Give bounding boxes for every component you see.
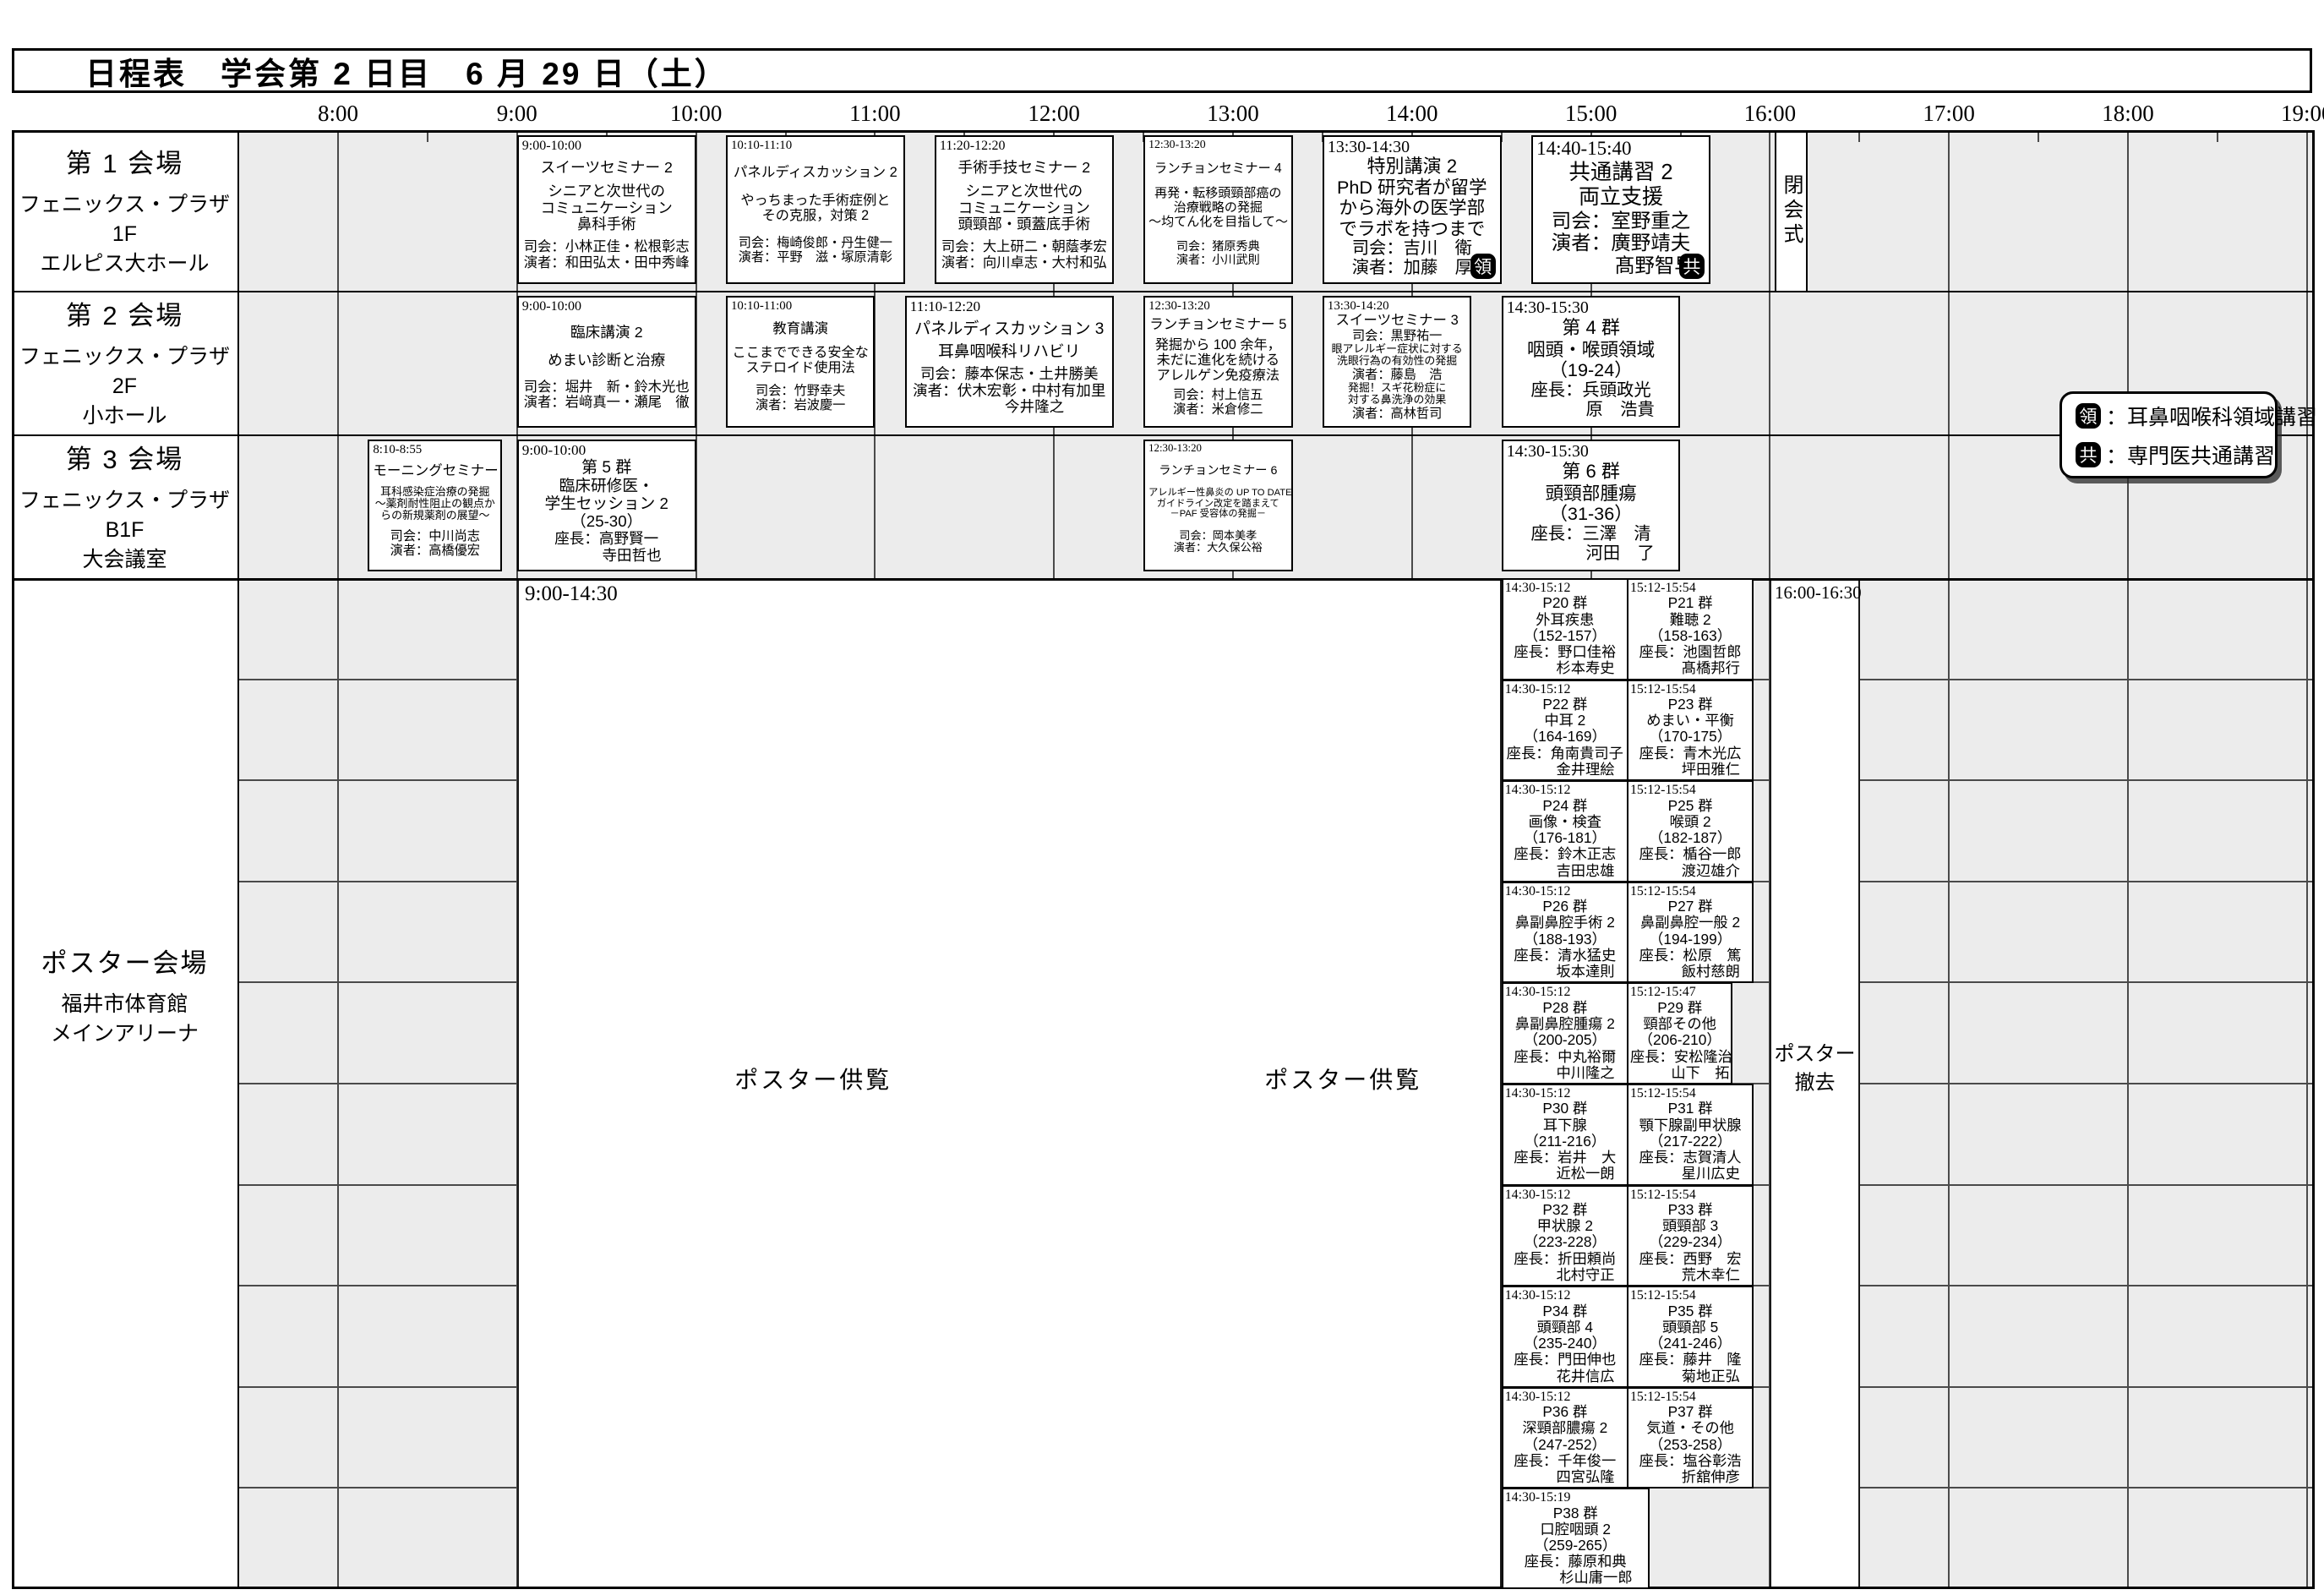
poster-group-line: （176-181） [1505, 830, 1625, 846]
line-group: パネルディスカッション 2 [731, 165, 900, 180]
poster-viewing-cell: 9:00-14:30 ポスター供覧 ポスター供覧 [517, 578, 1502, 1589]
poster-group-line: 北村守正 [1505, 1267, 1625, 1283]
session-line: 耳科感染症治療の発掘 [373, 486, 497, 498]
poster-group-content: P23 群めまい・平衡（170-175）座長：青木光広坪田雅仁 [1630, 696, 1750, 778]
line-group: 両立支援 [1536, 185, 1705, 209]
session-content: 教育講演ここまでできる安全なステロイド使用法司会：竹野幸夫演者：岩波慶一 [731, 313, 870, 421]
session-line: 司会：梅崎俊郎・丹生健一 [731, 236, 900, 250]
session-line: 演者：小川武則 [1148, 254, 1287, 267]
line-group: スイーツセミナー 3 [1328, 313, 1466, 328]
venue-name: 第 1 会場 [66, 142, 183, 180]
poster-group-content: P21 群難聴 2（158-163）座長：池園哲郎髙橋邦行 [1630, 595, 1750, 676]
poster-group-time: 15:12-15:54 [1630, 884, 1750, 899]
session-content: ランチョンセミナー 5発掘から 100 余年，未だに進化を続けるアレルゲン免疫療… [1148, 313, 1287, 421]
session-time: 10:10-11:00 [731, 299, 870, 313]
schedule-page: 日程表 学会第 2 日目 6 月 29 日（土） 9:00-14:30 ポスター… [0, 0, 2324, 1595]
poster-group-line: 画像・検査 [1505, 814, 1625, 830]
session-content: 手術手技セミナー 2シニアと次世代のコミュニケーション頭頸部・頭蓋底手術司会：大… [940, 153, 1109, 277]
session-line: 演者：廣野靖夫 [1536, 232, 1705, 254]
poster-group-line: （206-210） [1630, 1032, 1729, 1048]
poster-group-content: P35 群頭頸部 5（241-246）座長：藤井 隆菊地正弘 [1630, 1303, 1750, 1384]
poster-group-time: 14:30-15:12 [1505, 783, 1625, 797]
poster-group-line: P29 群 [1630, 1000, 1729, 1016]
line-group: 座長：三澤 清河田 了 [1507, 525, 1676, 564]
poster-group-line: P34 群 [1505, 1303, 1625, 1319]
poster-group-line: （223-228） [1505, 1234, 1625, 1250]
session-line: 手術手技セミナー 2 [940, 160, 1109, 177]
poster-group-line: めまい・平衡 [1630, 713, 1750, 729]
session-line: ランチョンセミナー 4 [1148, 161, 1287, 176]
poster-removal-time: 16:00-16:30 [1775, 582, 1862, 604]
session-content: ランチョンセミナー 6アレルギー性鼻炎の UP TO DATEガイドライン改定を… [1148, 455, 1287, 565]
line-group: 眼アレルギー症状に対する洗眼行為の有効性の発掘 [1328, 343, 1466, 368]
session-block: 9:00-10:00第 5 群臨床研修医・学生セッション 2（25-30）座長：… [517, 440, 696, 571]
session-block: 10:10-11:00教育講演ここまでできる安全なステロイド使用法司会：竹野幸夫… [726, 296, 875, 428]
poster-group-time: 15:12-15:54 [1630, 1288, 1750, 1303]
session-line: ランチョンセミナー 6 [1148, 465, 1287, 478]
session-content: 第 5 群臨床研修医・学生セッション 2（25-30）座長：高野賢一寺田哲也 [522, 459, 691, 565]
session-line: 洗眼行為の有効性の発掘 [1328, 355, 1466, 367]
session-content: パネルディスカッション 3耳鼻咽喉科リハビリ司会：藤本保志・土井勝美演者：伏木宏… [910, 315, 1109, 421]
session-content: 第 4 群咽頭・喉頭領域（19-24）座長：兵頭政光原 浩貴 [1507, 317, 1676, 421]
line-group: 頭頸部腫瘍（31-36） [1507, 483, 1676, 524]
session-time: 11:20-12:20 [940, 139, 1109, 153]
poster-group-block: 15:12-15:47P29 群頸部その他（206-210）座長：安松隆治山下 … [1627, 982, 1732, 1084]
poster-group-line: 外耳疾患 [1505, 612, 1625, 628]
venue-hall: メインアリーナ [51, 1019, 199, 1049]
session-line: 演者：高橋優宏 [373, 544, 497, 558]
poster-group-line: 座長：中丸裕爾 [1505, 1049, 1625, 1065]
poster-removal-label: ポスター撤去 [1773, 1041, 1858, 1097]
session-line: 眼アレルギー症状に対する [1328, 343, 1466, 355]
time-axis-label: 17:00 [1902, 101, 1995, 127]
poster-group-line: 顎下腺副甲状腺 [1630, 1117, 1750, 1133]
session-line: 司会：小林正佳・松根彰志 [522, 239, 691, 254]
session-line: 特別講演 2 [1328, 156, 1497, 178]
poster-group-line: （200-205） [1505, 1032, 1625, 1048]
poster-group-line: 座長：岩井 大 [1505, 1150, 1625, 1166]
ryoiki-badge: 領 [2076, 403, 2101, 429]
session-line: らの新規薬剤の展望～ [373, 510, 497, 522]
poster-group-line: 金井理絵 [1505, 762, 1625, 778]
poster-group-content: P25 群喉頭 2（182-187）座長：楯谷一郎渡辺雄介 [1630, 797, 1750, 878]
session-line: スイーツセミナー 2 [522, 160, 691, 177]
poster-group-time: 14:30-15:12 [1505, 581, 1625, 595]
poster-group-line: 座長：折田頼尚 [1505, 1251, 1625, 1267]
session-line: その克服，対策 2 [731, 208, 900, 223]
poster-group-line: 座長：藤原和典 [1505, 1554, 1646, 1570]
session-line: 司会：村上信五 [1148, 388, 1287, 402]
poster-group-line: 座長：清水猛史 [1505, 948, 1625, 964]
poster-group-line: 渡辺雄介 [1630, 863, 1750, 879]
session-time: 14:30-15:30 [1507, 299, 1676, 317]
poster-group-line: 坂本達則 [1505, 964, 1625, 980]
poster-group-line: 髙橋邦行 [1630, 660, 1750, 676]
row-border [12, 291, 2315, 292]
poster-group-line: 座長：志賀清人 [1630, 1150, 1750, 1166]
poster-group-line: 座長：藤井 隆 [1630, 1352, 1750, 1368]
frame-border [2312, 130, 2315, 1589]
title-bar: 日程表 学会第 2 日目 6 月 29 日（土） [12, 48, 2312, 93]
poster-group-line: 座長：角南貴司子 [1505, 746, 1625, 762]
venue-floor: 福井市体育館 [61, 990, 188, 1019]
line-group: やっちまった手術症例とその克服，対策 2 [731, 193, 900, 223]
session-line: モーニングセミナー [373, 463, 497, 478]
session-content: パネルディスカッション 2やっちまった手術症例とその克服，対策 2司会：梅崎俊郎… [731, 152, 900, 277]
line-group: シニアと次世代のコミュニケーション鼻科手術 [522, 183, 691, 232]
session-line: 治療戦略の発掘 [1148, 201, 1287, 216]
poster-group-time: 14:30-15:12 [1505, 682, 1625, 696]
poster-group-time: 14:30-15:12 [1505, 1390, 1625, 1404]
line-group: 第 6 群 [1507, 462, 1676, 483]
session-line: めまい診断と治療 [522, 352, 691, 369]
line-group: シニアと次世代のコミュニケーション頭頸部・頭蓋底手術 [940, 183, 1109, 232]
poster-group-line: P35 群 [1630, 1303, 1750, 1319]
poster-group-content: P32 群甲状腺 2（223-228）座長：折田頼尚北村守正 [1505, 1202, 1625, 1283]
poster-group-content: P28 群鼻副鼻腔腫瘍 2（200-205）座長：中丸裕爾中川隆之 [1505, 1000, 1625, 1081]
lecture-type-badge: 領 [1470, 254, 1496, 279]
hour-gridline [337, 130, 339, 1589]
session-block: 12:30-13:20ランチョンセミナー 6アレルギー性鼻炎の UP TO DA… [1143, 440, 1292, 571]
poster-group-line: （253-258） [1630, 1437, 1750, 1453]
session-block: 14:40-15:40共通講習 2両立支援司会：室野重之演者：廣野靖夫髙野智早共 [1531, 135, 1710, 284]
line-group: 演者：藤島 浩 [1328, 368, 1466, 382]
poster-group-content: P34 群頭頸部 4（235-240）座長：門田伸也花井信広 [1505, 1303, 1625, 1384]
session-line: から海外の医学部 [1328, 198, 1497, 218]
poster-group-line: （247-252） [1505, 1437, 1625, 1453]
session-line: 鼻科手術 [522, 216, 691, 232]
venue-label-3: 第 3 会場フェニックス・プラザ B1F大会議室 [14, 434, 235, 578]
line-group: 手術手技セミナー 2 [940, 160, 1109, 177]
session-line: 司会：中川尚志 [373, 529, 497, 544]
poster-group-line: （217-222） [1630, 1133, 1750, 1150]
time-axis-label: 19:00 [2261, 101, 2324, 127]
line-group: 耳鼻咽喉科リハビリ [910, 343, 1109, 361]
poster-group-time: 14:30-15:12 [1505, 884, 1625, 899]
poster-group-line: 鼻副鼻腔手術 2 [1505, 915, 1625, 931]
session-line: 原 浩貴 [1507, 401, 1676, 420]
session-line: 学生セッション 2 [522, 495, 691, 513]
session-line: ランチョンセミナー 5 [1148, 317, 1287, 332]
line-group: 咽頭・喉頭領域（19-24） [1507, 340, 1676, 380]
time-axis-label: 16:00 [1723, 101, 1816, 127]
line-group: 座長：高野賢一寺田哲也 [522, 531, 691, 564]
session-content: スイーツセミナー 2シニアと次世代のコミュニケーション鼻科手術司会：小林正佳・松… [522, 153, 691, 277]
session-line: 河田 了 [1507, 544, 1676, 564]
poster-group-line: 飯村慈朗 [1630, 964, 1750, 980]
poster-group-line: 頭頸部 4 [1505, 1319, 1625, 1336]
poster-group-line: 座長：池園哲郎 [1630, 644, 1750, 660]
session-time: 11:10-12:20 [910, 299, 1109, 315]
session-block: 11:20-12:20手術手技セミナー 2シニアと次世代のコミュニケーション頭頸… [935, 135, 1114, 284]
session-line: 咽頭・喉頭領域 [1507, 340, 1676, 360]
session-time: 9:00-10:00 [522, 139, 691, 153]
poster-group-line: 座長：塩谷彰浩 [1630, 1453, 1750, 1469]
line-group: 教育講演 [731, 321, 870, 336]
venue-label-poster: ポスター会場福井市体育館メインアリーナ [14, 578, 235, 1587]
session-line: 寺田哲也 [522, 548, 691, 565]
line-group: ランチョンセミナー 5 [1148, 317, 1287, 332]
poster-group-block: 15:12-15:54P27 群鼻副鼻腔一般 2（194-199）座長：松原 篤… [1627, 882, 1754, 984]
session-line: 司会：竹野幸夫 [731, 384, 870, 398]
poster-group-line: 口腔咽頭 2 [1505, 1521, 1646, 1538]
poster-group-line: P21 群 [1630, 595, 1750, 611]
poster-group-line: （158-163） [1630, 628, 1750, 644]
session-line: 司会：大上研二・朝蔭孝宏 [940, 239, 1109, 254]
session-time: 9:00-10:00 [522, 299, 691, 314]
session-line: 教育講演 [731, 321, 870, 336]
hour-gridline [2306, 130, 2308, 1589]
poster-group-line: 気道・その他 [1630, 1420, 1750, 1436]
session-line: ステロイド使用法 [731, 360, 870, 375]
session-line: 演者：大久保公裕 [1148, 542, 1287, 554]
poster-group-content: P27 群鼻副鼻腔一般 2（194-199）座長：松原 篤飯村慈朗 [1630, 899, 1750, 980]
poster-group-line: 喉頭 2 [1630, 814, 1750, 830]
session-line: －PAF 受容体の発掘－ [1148, 509, 1287, 520]
poster-group-line: （152-157） [1505, 628, 1625, 644]
line-group: 司会：大上研二・朝蔭孝宏演者：向川卓志・大村和弘 [940, 239, 1109, 270]
poster-viewing-time: 9:00-14:30 [525, 582, 618, 606]
session-line: アレルギー性鼻炎の UP TO DATE [1148, 488, 1287, 499]
poster-group-time: 15:12-15:54 [1630, 1390, 1750, 1404]
poster-group-line: 頭頸部 5 [1630, 1319, 1750, 1336]
session-line: 司会：藤本保志・土井勝美 [910, 366, 1109, 383]
session-block: 9:00-10:00スイーツセミナー 2シニアと次世代のコミュニケーション鼻科手… [517, 135, 696, 284]
line-group: 演者：高林哲司 [1328, 407, 1466, 421]
venue-hall: 大会議室 [82, 545, 166, 575]
time-axis-label: 13:00 [1187, 101, 1279, 127]
session-content: モーニングセミナー耳科感染症治療の発掘～薬剤耐性阻止の観点からの新規薬剤の展望～… [373, 456, 497, 565]
poster-group-block: 14:30-15:12P26 群鼻副鼻腔手術 2（188-193）座長：清水猛史… [1502, 882, 1628, 984]
closing-ceremony-cell: 閉会式 [1775, 130, 1808, 291]
venue-hall: エルピス大ホール [40, 249, 209, 279]
session-line: 共通講習 2 [1536, 161, 1705, 185]
venue-floor: フェニックス・プラザ 1F [14, 190, 235, 249]
poster-group-line: P28 群 [1505, 1000, 1625, 1016]
session-line: （19-24） [1507, 360, 1676, 380]
venue-label-1: 第 1 会場フェニックス・プラザ 1Fエルピス大ホール [14, 130, 235, 291]
session-line: 演者：藤島 浩 [1328, 368, 1466, 382]
poster-group-block: 14:30-15:12P32 群甲状腺 2（223-228）座長：折田頼尚北村守… [1502, 1185, 1628, 1287]
session-line: 臨床研修医・ [522, 478, 691, 495]
line-group: 司会：小林正佳・松根彰志演者：和田弘太・田中秀峰 [522, 239, 691, 270]
poster-group-content: P38 群口腔咽頭 2（259-265）座長：藤原和典杉山庸一郎 [1505, 1505, 1646, 1586]
line-group: 司会：藤本保志・土井勝美演者：伏木宏彰・中村有加里今井隆之 [910, 366, 1109, 416]
poster-group-block: 15:12-15:54P21 群難聴 2（158-163）座長：池園哲郎髙橋邦行 [1627, 578, 1754, 680]
poster-group-line: 折舘伸彦 [1630, 1469, 1750, 1485]
poster-group-block: 14:30-15:12P28 群鼻副鼻腔腫瘍 2（200-205）座長：中丸裕爾… [1502, 982, 1628, 1084]
poster-group-line: 甲状腺 2 [1505, 1218, 1625, 1234]
poster-group-line: （164-169） [1505, 729, 1625, 745]
session-block: 11:10-12:20パネルディスカッション 3耳鼻咽喉科リハビリ司会：藤本保志… [905, 296, 1114, 428]
legend-label: ：耳鼻咽喉科領域講習 [2106, 401, 2317, 431]
poster-group-time: 15:12-15:54 [1630, 1188, 1750, 1202]
session-line: パネルディスカッション 3 [910, 320, 1109, 338]
session-line: 座長：兵頭政光 [1507, 381, 1676, 401]
session-line: ここまでできる安全な [731, 345, 870, 360]
session-line: 司会：室野重之 [1536, 210, 1705, 232]
poster-group-time: 15:12-15:54 [1630, 783, 1750, 797]
poster-group-line: P26 群 [1505, 899, 1625, 915]
poster-group-line: P23 群 [1630, 696, 1750, 713]
page-title: 日程表 学会第 2 日目 6 月 29 日（土） [14, 48, 728, 94]
poster-group-line: P36 群 [1505, 1404, 1625, 1420]
poster-group-line: （211-216） [1505, 1133, 1625, 1150]
poster-group-content: P30 群耳下腺（211-216）座長：岩井 大近松一朗 [1505, 1101, 1625, 1182]
poster-group-line: 星川広史 [1630, 1166, 1750, 1182]
poster-group-time: 14:30-15:12 [1505, 1086, 1625, 1101]
poster-group-block: 15:12-15:54P37 群気道・その他（253-258）座長：塩谷彰浩折舘… [1627, 1387, 1754, 1489]
poster-group-time: 15:12-15:47 [1630, 985, 1729, 999]
session-block: 10:10-11:10パネルディスカッション 2やっちまった手術症例とその克服，… [726, 135, 905, 284]
time-axis-label: 12:00 [1007, 101, 1100, 127]
row-border [12, 434, 2315, 436]
line-group: 司会：猪原秀典演者：小川武則 [1148, 240, 1287, 267]
session-time: 10:10-11:10 [731, 139, 900, 152]
session-line: やっちまった手術症例と [731, 193, 900, 208]
poster-group-block: 14:30-15:19P38 群口腔咽頭 2（259-265）座長：藤原和典杉山… [1502, 1488, 1650, 1589]
poster-group-content: P31 群顎下腺副甲状腺（217-222）座長：志賀清人星川広史 [1630, 1101, 1750, 1182]
poster-group-line: P20 群 [1505, 595, 1625, 611]
venue-name: 第 3 会場 [66, 438, 183, 476]
session-block: 14:30-15:30第 6 群頭頸部腫瘍（31-36）座長：三澤 清河田 了 [1502, 440, 1681, 571]
session-line: ～均てん化を目指して～ [1148, 216, 1287, 230]
poster-group-line: （194-199） [1630, 931, 1750, 948]
poster-group-block: 15:12-15:54P35 群頭頸部 5（241-246）座長：藤井 隆菊地正… [1627, 1286, 1754, 1388]
session-line: 頭頸部・頭蓋底手術 [940, 216, 1109, 232]
poster-group-line: （188-193） [1505, 931, 1625, 948]
poster-group-line: （182-187） [1630, 830, 1750, 846]
line-group: 臨床研修医・学生セッション 2（25-30） [522, 478, 691, 531]
poster-group-line: （235-240） [1505, 1336, 1625, 1352]
line-group: 司会：村上信五演者：米倉修二 [1148, 388, 1287, 417]
session-line: 演者：平野 滋・塚原清彰 [731, 250, 900, 265]
poster-group-line: 吉田忠雄 [1505, 863, 1625, 879]
poster-group-line: P33 群 [1630, 1202, 1750, 1218]
line-group: 司会：中川尚志演者：高橋優宏 [373, 529, 497, 558]
session-content: スイーツセミナー 3司会：黒野祐一眼アレルギー症状に対する洗眼行為の有効性の発掘… [1328, 313, 1466, 421]
line-group: 発掘！スギ花粉症に対する鼻洗浄の効果 [1328, 382, 1466, 407]
poster-group-line: 鼻副鼻腔腫瘍 2 [1505, 1016, 1625, 1032]
session-line: 臨床講演 2 [522, 325, 691, 341]
poster-group-line: 座長：千年俊一 [1505, 1453, 1625, 1469]
poster-group-content: P36 群深頸部膿瘍 2（247-252）座長：千年俊一四宮弘隆 [1505, 1404, 1625, 1485]
legend-item: 領 ：耳鼻咽喉科領域講習 [2076, 401, 2275, 431]
poster-group-line: 座長：門田伸也 [1505, 1352, 1625, 1368]
poster-group-line: 座長：青木光広 [1630, 746, 1750, 762]
line-group: 司会：岡本美孝演者：大久保公裕 [1148, 530, 1287, 554]
poster-group-line: P24 群 [1505, 798, 1625, 814]
session-time: 12:30-13:20 [1148, 299, 1287, 313]
session-block: 8:10-8:55モーニングセミナー耳科感染症治療の発掘～薬剤耐性阻止の観点から… [368, 440, 502, 571]
line-group: 司会：黒野祐一 [1328, 329, 1466, 343]
session-line: 司会：岡本美孝 [1148, 530, 1287, 543]
poster-group-line: 荒木幸仁 [1630, 1267, 1750, 1283]
session-line: 第 4 群 [1507, 318, 1676, 339]
session-line: パネルディスカッション 2 [731, 165, 900, 180]
poster-group-line: P37 群 [1630, 1404, 1750, 1420]
lecture-type-badge: 共 [1679, 254, 1705, 279]
session-line: 未だに進化を続ける [1148, 352, 1287, 368]
line-group: 特別講演 2 [1328, 156, 1497, 178]
poster-group-line: 近松一朗 [1505, 1166, 1625, 1182]
poster-group-line: 深頸部膿瘍 2 [1505, 1420, 1625, 1436]
session-line: （31-36） [1507, 504, 1676, 524]
row-border [12, 130, 2315, 133]
line-group: めまい診断と治療 [522, 352, 691, 369]
session-line: 演者：向川卓志・大村和弘 [940, 255, 1109, 270]
session-block: 13:30-14:20スイーツセミナー 3司会：黒野祐一眼アレルギー症状に対する… [1323, 296, 1471, 428]
poster-group-line: （170-175） [1630, 729, 1750, 745]
line-group: パネルディスカッション 3 [910, 320, 1109, 338]
hour-gridline [1948, 130, 1950, 1589]
line-group: 第 4 群 [1507, 318, 1676, 339]
session-block: 12:30-13:20ランチョンセミナー 5発掘から 100 余年，未だに進化を… [1143, 296, 1292, 428]
poster-group-block: 14:30-15:12P36 群深頸部膿瘍 2（247-252）座長：千年俊一四… [1502, 1387, 1628, 1489]
line-group: 耳科感染症治療の発掘～薬剤耐性阻止の観点からの新規薬剤の展望～ [373, 486, 497, 522]
session-line: 再発・転移頭頸部癌の [1148, 187, 1287, 201]
line-group: 再発・転移頭頸部癌の治療戦略の発掘～均てん化を目指して～ [1148, 187, 1287, 230]
time-axis-label: 15:00 [1545, 101, 1638, 127]
poster-group-line: （259-265） [1505, 1538, 1646, 1554]
session-line: 司会：猪原秀典 [1148, 240, 1287, 254]
session-line: （25-30） [522, 513, 691, 531]
poster-viewing-label: ポスター供覧 [734, 1062, 892, 1095]
poster-group-line: 座長：松原 篤 [1630, 948, 1750, 964]
time-axis-label: 8:00 [292, 101, 385, 127]
session-content: 第 6 群頭頸部腫瘍（31-36）座長：三澤 清河田 了 [1507, 461, 1676, 565]
line-group: 司会：竹野幸夫演者：岩波慶一 [731, 384, 870, 412]
poster-group-line: 耳下腺 [1505, 1117, 1625, 1133]
session-line: ～薬剤耐性阻止の観点か [373, 498, 497, 510]
line-group: 司会：堀井 新・鈴木光也演者：岩﨑真一・瀬尾 徹 [522, 380, 691, 411]
session-time: 13:30-14:20 [1328, 299, 1466, 313]
poster-group-line: （241-246） [1630, 1336, 1750, 1352]
poster-group-line: 鼻副鼻腔一般 2 [1630, 915, 1750, 931]
session-line: 司会：堀井 新・鈴木光也 [522, 380, 691, 395]
session-line: 発掘から 100 余年， [1148, 337, 1287, 352]
session-line: シニアと次世代の [522, 183, 691, 199]
poster-group-time: 14:30-15:12 [1505, 1288, 1625, 1303]
line-group: スイーツセミナー 2 [522, 160, 691, 177]
frame-border [237, 130, 239, 1589]
session-content: 臨床講演 2めまい診断と治療司会：堀井 新・鈴木光也演者：岩﨑真一・瀬尾 徹 [522, 314, 691, 421]
legend-item: 共 ：専門医共通講習 [2076, 440, 2275, 470]
poster-viewing-label: ポスター供覧 [1264, 1062, 1421, 1095]
poster-group-line: P31 群 [1630, 1101, 1750, 1117]
session-line: 発掘！スギ花粉症に [1328, 382, 1466, 394]
session-line: 対する鼻洗浄の効果 [1328, 394, 1466, 406]
session-line: 演者：和田弘太・田中秀峰 [522, 255, 691, 270]
session-line: ガイドライン改定を踏まえて [1148, 499, 1287, 510]
poster-group-time: 15:12-15:54 [1630, 581, 1750, 595]
session-line: 頭頸部腫瘍 [1507, 483, 1676, 504]
row-border [12, 578, 2315, 581]
venue-floor: フェニックス・プラザ B1F [14, 486, 235, 545]
poster-group-time: 14:30-15:12 [1505, 1188, 1625, 1202]
session-line: 司会：黒野祐一 [1328, 329, 1466, 343]
poster-group-content: P37 群気道・その他（253-258）座長：塩谷彰浩折舘伸彦 [1630, 1404, 1750, 1485]
poster-group-time: 15:12-15:54 [1630, 1086, 1750, 1101]
venue-hall: 小ホール [82, 401, 166, 431]
session-line: 演者：米倉修二 [1148, 402, 1287, 417]
poster-group-line: 座長：楯谷一郎 [1630, 846, 1750, 862]
poster-group-content: P26 群鼻副鼻腔手術 2（188-193）座長：清水猛史坂本達則 [1505, 899, 1625, 980]
session-line: コミュニケーション [940, 200, 1109, 216]
poster-group-line: 中耳 2 [1505, 713, 1625, 729]
poster-group-line: P32 群 [1505, 1202, 1625, 1218]
session-time: 8:10-8:55 [373, 443, 497, 456]
